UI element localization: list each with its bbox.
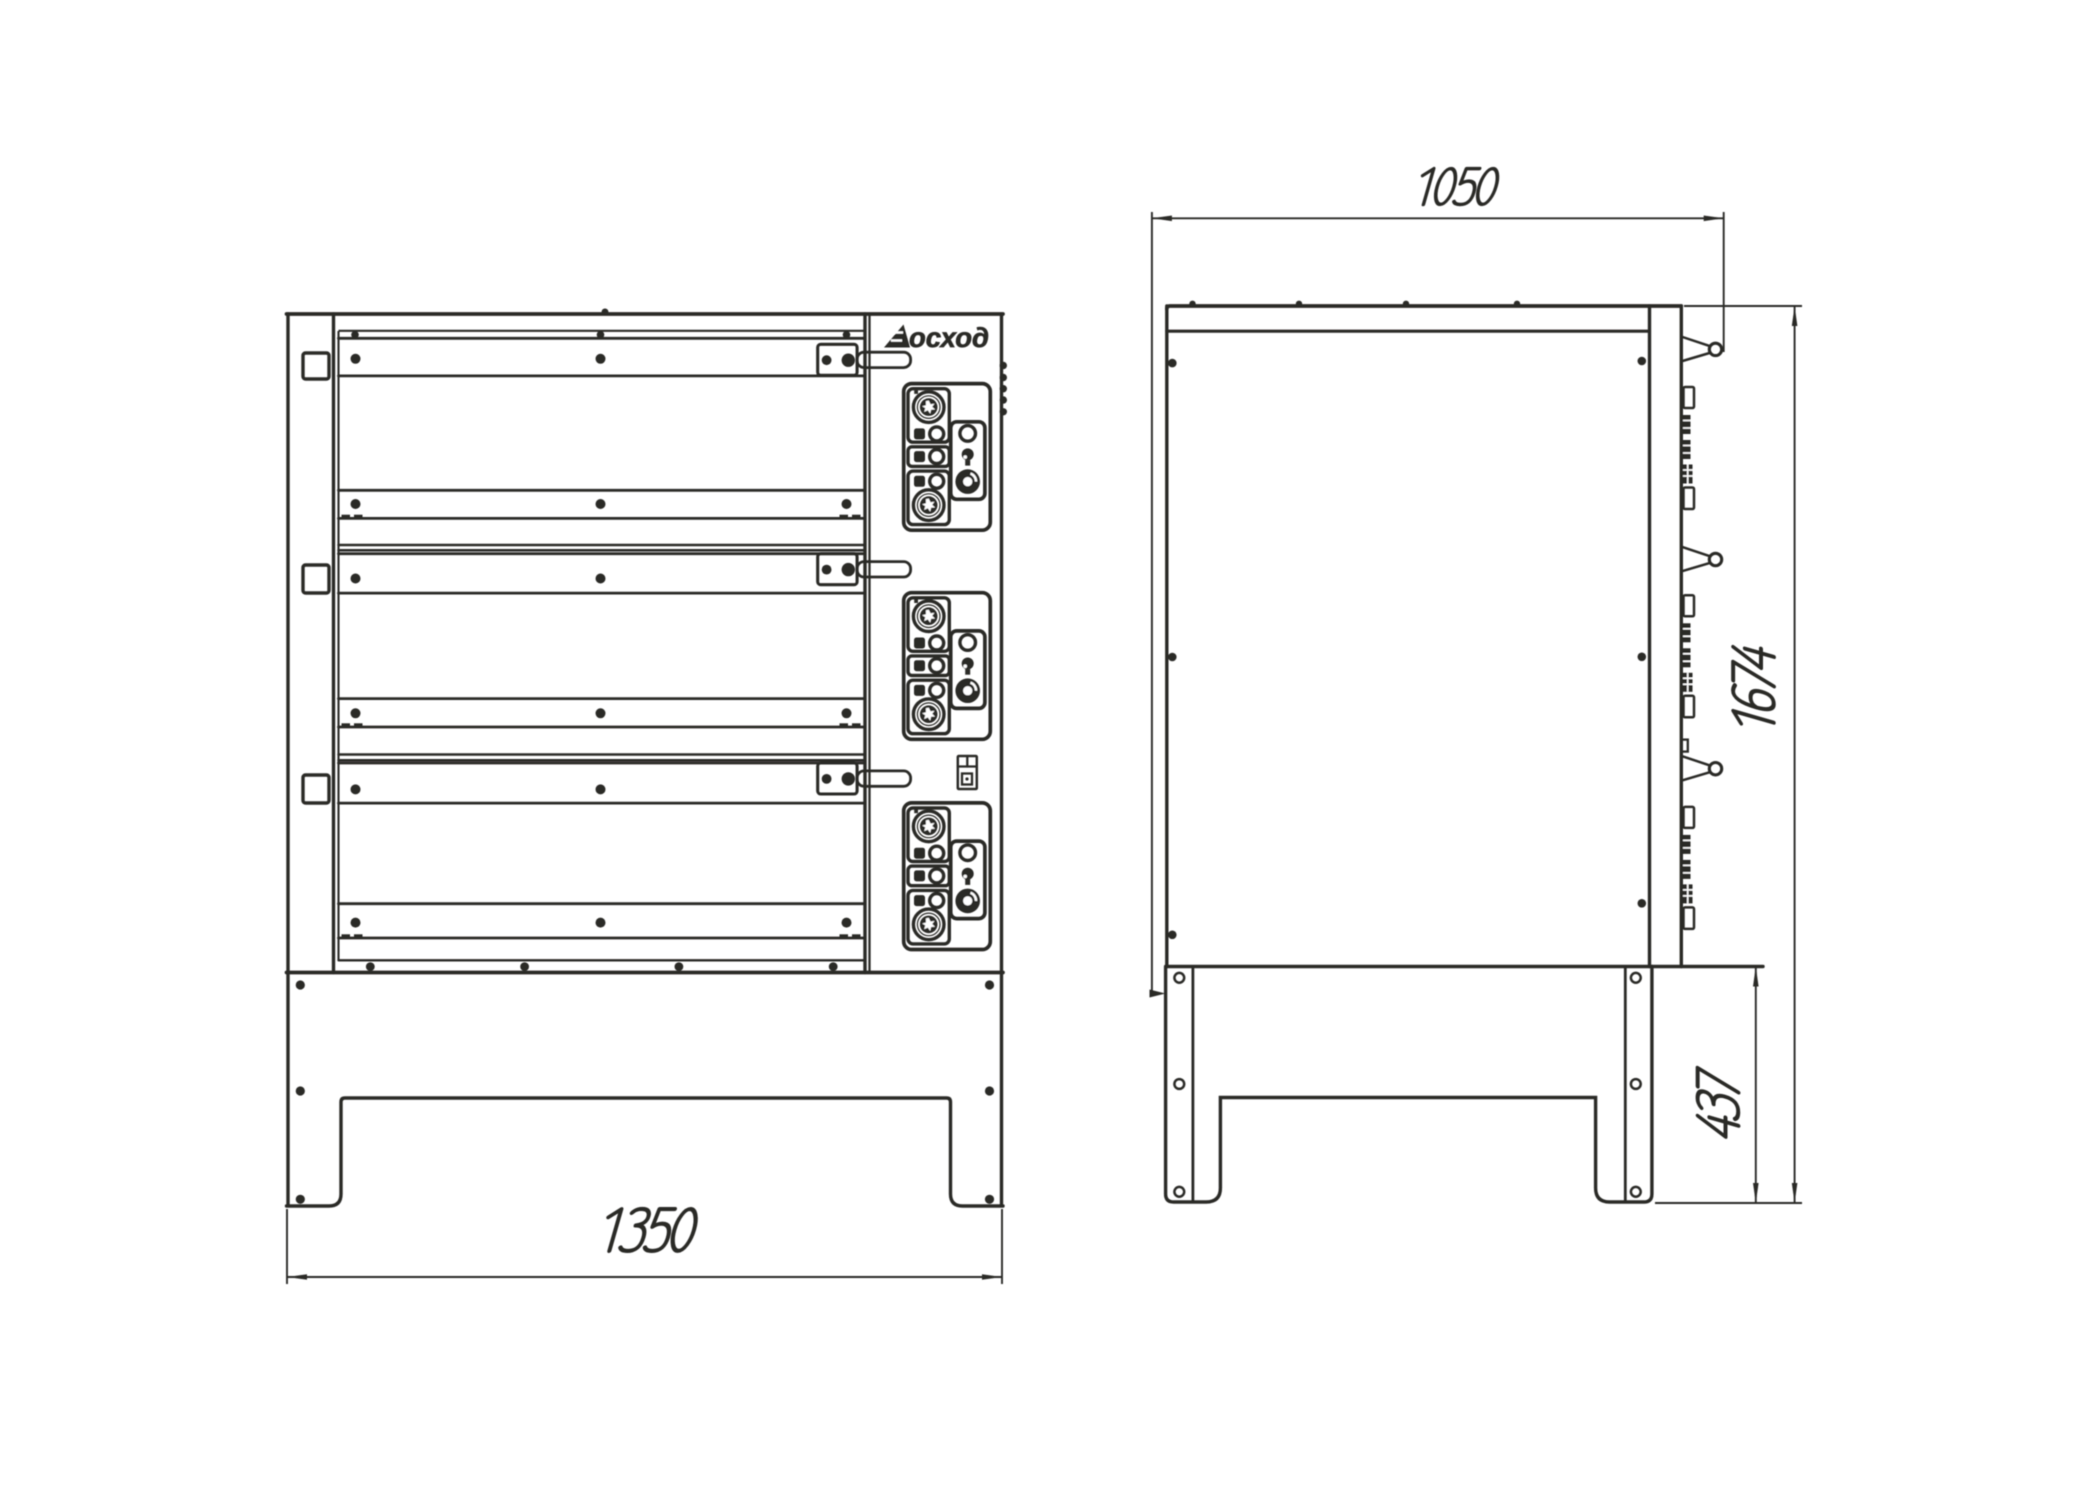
svg-text:осход: осход [909,322,989,353]
